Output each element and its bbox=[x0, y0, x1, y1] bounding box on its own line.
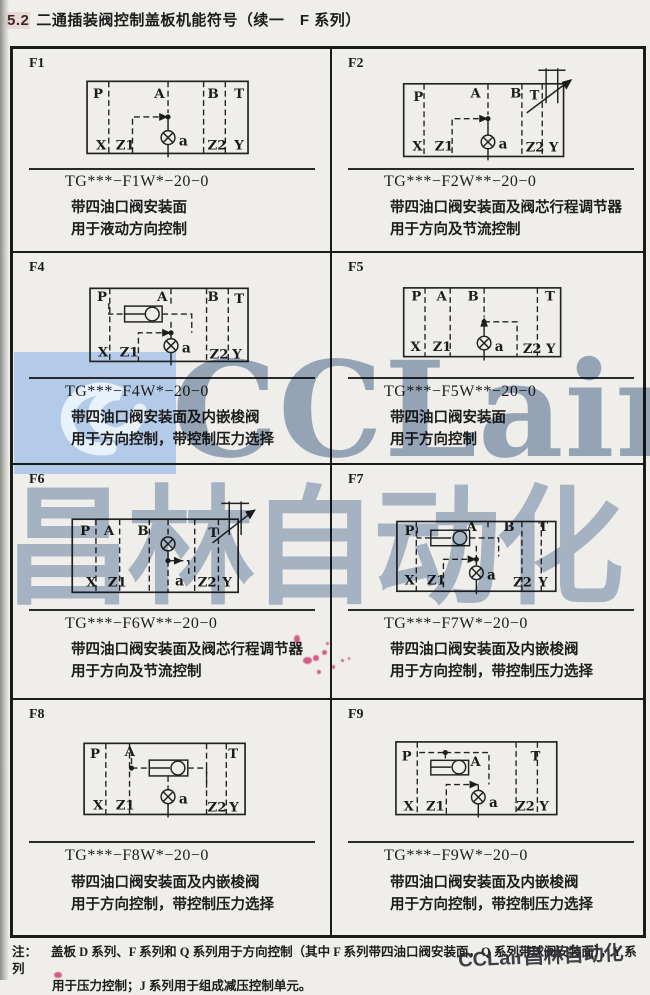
model-code: TG***−F8W*−20−0 bbox=[65, 847, 209, 865]
port-label: Y bbox=[548, 141, 559, 156]
description-line: 用于方向及节流控制 bbox=[71, 660, 202, 681]
page-title: 5.2二通插装阀控制盖板机能符号（续一 F 系列） bbox=[6, 9, 361, 30]
description-line: 用于方向及节流控制 bbox=[390, 218, 521, 239]
divider bbox=[348, 168, 634, 170]
port-label: Y bbox=[538, 800, 549, 815]
port-label: P bbox=[97, 289, 107, 305]
divider bbox=[348, 609, 634, 611]
shuttle-valve-icon bbox=[431, 760, 469, 775]
port-label: Z1 bbox=[433, 340, 452, 355]
port-label: Z1 bbox=[427, 573, 446, 588]
description-line: 带四油口阀安装面及内嵌梭阀 bbox=[71, 871, 260, 892]
footnote-line1: 盖板 D 系列、F 系列和 Q 系列用于方向控制（其中 F 系列带四油口阀安装面… bbox=[12, 945, 637, 976]
description-line: 用于液动方向控制 bbox=[71, 218, 187, 239]
pilot-port-icon bbox=[470, 566, 484, 580]
port-label: X bbox=[93, 798, 104, 814]
cell-f8: F8 bbox=[13, 700, 332, 935]
port-label: Z1 bbox=[116, 798, 135, 814]
port-label: P bbox=[405, 524, 415, 539]
port-label: P bbox=[402, 749, 412, 764]
port-label: Y bbox=[233, 137, 244, 153]
model-code: TG***−F4W*−20−0 bbox=[65, 383, 209, 401]
shuttle-valve-icon bbox=[431, 530, 470, 546]
cell-f7: F7 bbox=[332, 465, 643, 700]
symbol-table: F1 P A B T X bbox=[10, 46, 646, 938]
pilot-port-icon bbox=[481, 135, 495, 149]
port-label: Z2 bbox=[523, 342, 542, 357]
model-code: TG***−F2W**−20−0 bbox=[384, 173, 536, 191]
port-label: Z1 bbox=[108, 574, 127, 590]
port-label: X bbox=[404, 800, 415, 815]
pilot-label: a bbox=[179, 792, 188, 808]
pilot-port-icon bbox=[161, 131, 175, 145]
port-label: P bbox=[93, 86, 103, 102]
description-line: 带四油口阀安装面及阀芯行程调节器 bbox=[71, 638, 303, 659]
hydraulic-symbol-f6: P A B T X Z1 a Z2 Y bbox=[13, 465, 330, 609]
divider bbox=[348, 841, 634, 843]
port-label: B bbox=[137, 523, 148, 539]
port-label: P bbox=[413, 90, 423, 105]
hydraulic-symbol-f9: P A T X Z1 Z2 Y a bbox=[332, 700, 643, 841]
description-line: 带四油口阀安装面 bbox=[390, 406, 506, 427]
description-line: 用于方向控制，带控制压力选择 bbox=[71, 428, 274, 449]
divider bbox=[348, 377, 634, 379]
footnote-label: 注： bbox=[12, 945, 37, 959]
description-line: 用于方向控制，带控制压力选择 bbox=[390, 660, 593, 681]
port-label: B bbox=[468, 289, 479, 304]
port-label: T bbox=[234, 86, 244, 102]
port-label: Z2 bbox=[210, 346, 229, 362]
pilot-label: a bbox=[487, 568, 496, 584]
port-label: P bbox=[411, 289, 421, 304]
port-label: T bbox=[228, 746, 238, 762]
pilot-port-icon bbox=[472, 790, 486, 804]
port-label: Z2 bbox=[208, 137, 227, 153]
port-label: P bbox=[90, 746, 100, 762]
footnote: 注：盖板 D 系列、F 系列和 Q 系列用于方向控制（其中 F 系列带四油口阀安… bbox=[12, 944, 644, 995]
port-label: Z2 bbox=[516, 800, 535, 815]
cell-f5: F5 P A B T X bbox=[332, 253, 643, 465]
description-line: 带四油口阀安装面及阀芯行程调节器 bbox=[390, 196, 622, 217]
port-label: Y bbox=[545, 342, 556, 357]
port-label: Y bbox=[231, 346, 242, 362]
model-code: TG***−F1W*−20−0 bbox=[65, 173, 209, 191]
port-label: B bbox=[503, 520, 514, 535]
cell-f9: F9 bbox=[332, 700, 643, 935]
port-label: Z2 bbox=[513, 575, 532, 590]
port-label: A bbox=[470, 755, 482, 770]
port-label: A bbox=[470, 86, 482, 101]
port-label: Z2 bbox=[198, 574, 217, 590]
port-label: Y bbox=[537, 575, 548, 590]
pilot-label: a bbox=[182, 341, 191, 357]
port-label: B bbox=[208, 289, 219, 305]
description-line: 用于方向控制 bbox=[390, 428, 477, 449]
cell-f4: F4 bbox=[13, 253, 332, 465]
pilot-port-icon bbox=[477, 336, 491, 350]
hydraulic-symbol-f7: P A B T X Z1 Z2 Y a bbox=[332, 465, 643, 609]
hydraulic-symbol-f8: P A T X Z1 Z2 Y a bbox=[13, 700, 330, 841]
port-label: Z1 bbox=[120, 344, 139, 360]
port-label: X bbox=[410, 340, 421, 355]
description-line: 用于方向控制，带控制压力选择 bbox=[71, 893, 274, 914]
port-label: A bbox=[103, 523, 115, 539]
description-line: 带四油口阀安装面及内嵌梭阀 bbox=[390, 638, 579, 659]
port-label: B bbox=[208, 86, 219, 102]
port-label: X bbox=[412, 140, 423, 155]
hydraulic-symbol-f2: P A B T X Z1 Z2 Y a bbox=[332, 49, 643, 168]
port-label: B bbox=[510, 86, 521, 101]
port-label: Z1 bbox=[116, 137, 135, 153]
cell-f1: F1 P A B T X bbox=[13, 49, 332, 253]
port-label: Z2 bbox=[208, 799, 227, 815]
cell-f6: F6 bbox=[13, 465, 332, 700]
description-line: 带四油口阀安装面 bbox=[71, 196, 187, 217]
port-label: T bbox=[538, 520, 548, 535]
scanned-page: 5.2二通插装阀控制盖板机能符号（续一 F 系列） F1 bbox=[0, 0, 650, 980]
model-code: TG***−F5W**−20−0 bbox=[384, 383, 536, 401]
pilot-label: a bbox=[489, 795, 498, 811]
port-label: T bbox=[530, 88, 540, 103]
hydraulic-symbol-f4: P A B T X Z1 Z2 Y a bbox=[13, 253, 330, 377]
port-label: T bbox=[234, 291, 244, 307]
divider bbox=[29, 168, 315, 170]
port-label: Y bbox=[221, 574, 232, 590]
shuttle-valve-icon bbox=[125, 306, 163, 322]
model-code: TG***−F7W*−20−0 bbox=[384, 615, 528, 633]
pilot-label: a bbox=[499, 137, 508, 153]
port-label: X bbox=[86, 574, 97, 590]
port-label: Z1 bbox=[426, 800, 445, 815]
divider bbox=[29, 609, 315, 611]
cell-f2: F2 bbox=[332, 49, 643, 253]
pilot-label: a bbox=[179, 134, 188, 150]
footnote-line2: 用于压力控制；J 系列用于组成减压控制单元。 bbox=[52, 978, 644, 995]
section-title: 二通插装阀控制盖板机能符号（续一 F 系列） bbox=[36, 12, 360, 29]
pilot-label: a bbox=[495, 339, 504, 355]
divider bbox=[29, 377, 315, 379]
port-label: Z2 bbox=[526, 141, 545, 156]
section-number: 5.2 bbox=[6, 12, 30, 29]
port-label: A bbox=[466, 520, 478, 535]
description-line: 用于方向控制，带控制压力选择 bbox=[390, 893, 593, 914]
port-label: X bbox=[96, 137, 107, 153]
ink-mark bbox=[0, 953, 5, 967]
model-code: TG***−F6W**−20−0 bbox=[65, 615, 217, 633]
pilot-port-icon bbox=[164, 339, 178, 353]
port-label: A bbox=[124, 744, 136, 760]
pilot-label: a bbox=[175, 573, 184, 589]
port-label: A bbox=[153, 86, 165, 102]
hydraulic-symbol-f1: P A B T X Z1 Z2 Y a bbox=[13, 49, 330, 168]
description-line: 带四油口阀安装面及内嵌梭阀 bbox=[71, 406, 260, 427]
port-label: Y bbox=[228, 799, 239, 815]
shuttle-valve-icon bbox=[149, 760, 188, 776]
hydraulic-symbol-f5: P A B T X Z1 Z2 Y a bbox=[332, 253, 643, 377]
port-label: Z1 bbox=[435, 140, 454, 155]
port-label: A bbox=[436, 289, 448, 304]
port-label: A bbox=[156, 289, 168, 305]
port-label: X bbox=[405, 573, 416, 588]
port-label: X bbox=[98, 344, 109, 360]
port-label: T bbox=[545, 289, 555, 304]
description-line: 带四油口阀安装面及内嵌梭阀 bbox=[390, 871, 579, 892]
model-code: TG***−F9W*−20−0 bbox=[384, 847, 528, 865]
scan-edge bbox=[0, 0, 9, 980]
pilot-port-icon bbox=[161, 790, 175, 804]
port-label: P bbox=[80, 523, 90, 539]
port-label: T bbox=[209, 525, 219, 541]
divider bbox=[29, 841, 315, 843]
pilot-port-icon bbox=[161, 537, 175, 551]
port-label: T bbox=[531, 749, 541, 764]
